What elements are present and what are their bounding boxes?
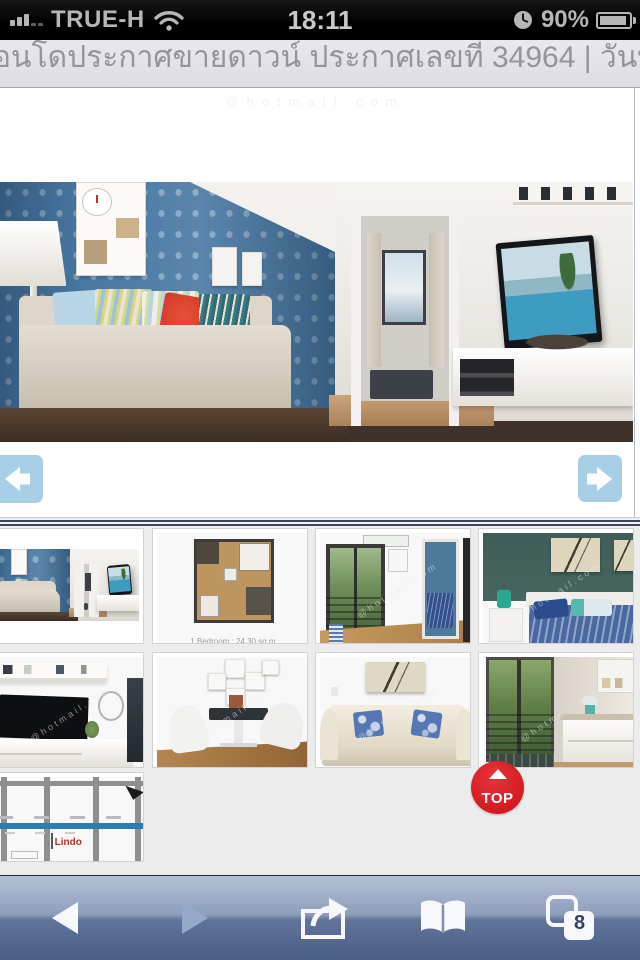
thumbnail-kitchen-balcony[interactable]: @hotmail.com bbox=[478, 652, 634, 768]
map-labels bbox=[5, 832, 82, 835]
bedroom-doorway bbox=[351, 208, 459, 426]
battery-percent-label: 90% bbox=[541, 6, 589, 34]
tv bbox=[0, 694, 89, 740]
bed bbox=[427, 593, 453, 629]
thumb-photo: Lindo bbox=[0, 777, 144, 862]
wood-floor bbox=[361, 401, 449, 426]
curtain bbox=[429, 233, 444, 368]
frame-photo bbox=[116, 218, 139, 238]
next-photo-button[interactable] bbox=[578, 455, 622, 502]
sofa-armrest bbox=[320, 709, 338, 759]
thumbnail-floor-plan[interactable]: 1 Bedroom : 24.30 sq.m. bbox=[152, 528, 308, 644]
battery-icon bbox=[596, 12, 632, 29]
tv-screen-pool-image bbox=[501, 242, 597, 341]
upper-cabinet bbox=[597, 659, 634, 693]
chair bbox=[165, 702, 210, 754]
thumb-photo: @hotmail.com bbox=[483, 533, 634, 644]
wall-art bbox=[366, 662, 425, 693]
tv-cabinet bbox=[0, 739, 132, 768]
photo-frame bbox=[262, 660, 279, 675]
thumbnail-tv-cabinet[interactable]: @hotmail.com bbox=[0, 652, 144, 768]
alarm-clock-icon bbox=[512, 9, 534, 31]
thumb-photo: @hotmail.com bbox=[483, 657, 634, 768]
share-icon bbox=[298, 895, 352, 941]
up-arrow-icon bbox=[489, 769, 507, 779]
watermark-text: @hotmail.com bbox=[0, 94, 630, 109]
floor-lamp-shade bbox=[0, 221, 66, 286]
thumbnail-location-map[interactable]: Lindo bbox=[0, 772, 144, 862]
back-arrow-icon bbox=[48, 899, 84, 937]
bedroom-doorway bbox=[422, 539, 459, 639]
top-button-label: TOP bbox=[471, 790, 524, 807]
thumb-photo: @hotmail.com bbox=[320, 657, 471, 768]
photo-frame bbox=[225, 659, 245, 677]
open-book-icon bbox=[416, 897, 470, 939]
status-bar: TRUE-H 18:11 90% bbox=[0, 0, 640, 40]
dining-table bbox=[209, 708, 268, 719]
thumbnail-dining-area[interactable]: @hotmail.com bbox=[152, 652, 308, 768]
floral-pillow bbox=[353, 709, 385, 738]
floral-pillow bbox=[411, 709, 444, 739]
thumb-photo: @hotmail.com bbox=[157, 657, 308, 768]
thumbnail-grid: 1 Bedroom : 24.30 sq.m. @hotmail.com bbox=[0, 527, 640, 875]
cabinet-drawer bbox=[460, 359, 514, 397]
bookmarks-button[interactable] bbox=[415, 890, 471, 946]
thumb-photo: 1 Bedroom : 24.30 sq.m. bbox=[157, 533, 308, 644]
browser-toolbar: 8 bbox=[0, 875, 640, 960]
wall-art bbox=[614, 540, 634, 571]
bedroom-window bbox=[382, 250, 426, 326]
pillow bbox=[571, 599, 613, 616]
clock-face bbox=[82, 188, 112, 215]
floorplan-caption: 1 Bedroom : 24.30 sq.m. bbox=[157, 637, 308, 644]
listing-info-text: อนโดประกาศขายดาวน์ ประกาศเลขที่ 34964 | … bbox=[0, 40, 640, 81]
sofa-armrest bbox=[456, 709, 471, 759]
status-right-group: 90% bbox=[512, 0, 632, 40]
right-arrow-icon bbox=[583, 463, 617, 495]
sofa bbox=[19, 325, 291, 416]
plant bbox=[85, 721, 99, 738]
map-project-label: Lindo bbox=[55, 837, 82, 848]
wall-decor bbox=[98, 691, 124, 721]
wall-clock-frame bbox=[76, 182, 146, 276]
map-labels bbox=[0, 816, 139, 820]
wood-floor bbox=[551, 762, 634, 768]
photo-frame bbox=[208, 673, 226, 690]
map-road bbox=[44, 777, 50, 862]
share-button[interactable] bbox=[297, 890, 353, 946]
pages-count-badge: 8 bbox=[566, 912, 593, 935]
map-road bbox=[1, 777, 7, 862]
thumb-photo: @hotmail.com bbox=[0, 657, 144, 768]
map-road bbox=[0, 781, 144, 785]
back-to-top-button[interactable]: TOP bbox=[471, 761, 524, 814]
thumb-photo bbox=[0, 549, 139, 621]
nightstand bbox=[489, 608, 523, 642]
shelf-items bbox=[519, 187, 627, 200]
open-pages-button[interactable]: 8 bbox=[542, 890, 598, 946]
wall-art bbox=[551, 538, 600, 572]
picture-frame bbox=[242, 252, 262, 286]
map-legend-box bbox=[11, 851, 37, 859]
sofa bbox=[322, 716, 471, 766]
frame-photo bbox=[84, 240, 107, 264]
floor-plan-drawing bbox=[194, 539, 274, 623]
curtain bbox=[367, 233, 382, 368]
main-photo-living-room[interactable] bbox=[0, 182, 633, 442]
thumbnail-hallway-balcony[interactable]: @hotmail.com bbox=[315, 528, 471, 644]
tv-cabinet bbox=[453, 348, 633, 405]
bed bbox=[370, 370, 433, 399]
left-arrow-icon bbox=[0, 463, 34, 495]
map-road bbox=[93, 777, 99, 862]
wall-shelf bbox=[0, 663, 107, 682]
section-divider bbox=[0, 519, 640, 527]
map-main-road bbox=[0, 823, 144, 829]
kitchen-cabinet bbox=[563, 720, 634, 766]
forward-arrow-icon bbox=[176, 899, 212, 937]
thumb-photo: @hotmail.com bbox=[320, 533, 471, 644]
wardrobe bbox=[463, 538, 471, 643]
back-button[interactable] bbox=[38, 890, 94, 946]
cabinet-decor bbox=[519, 333, 595, 351]
photo-viewer: @hotmail.com bbox=[0, 88, 640, 518]
picture-frame bbox=[212, 247, 237, 286]
forward-button-disabled[interactable] bbox=[166, 890, 222, 946]
dark-rug bbox=[0, 408, 367, 442]
previous-photo-button[interactable] bbox=[0, 455, 43, 503]
table-lamp bbox=[497, 590, 511, 608]
thumbnail-living-room[interactable] bbox=[0, 528, 144, 644]
thumbnail-bedroom[interactable]: @hotmail.com bbox=[478, 528, 634, 644]
iphone-screen: TRUE-H 18:11 90% อนโดประกาศขายดาวน์ ประก… bbox=[0, 0, 640, 960]
thumbnail-sofa[interactable]: @hotmail.com bbox=[315, 652, 471, 768]
listing-header: อนโดประกาศขายดาวน์ ประกาศเลขที่ 34964 | … bbox=[0, 40, 640, 88]
